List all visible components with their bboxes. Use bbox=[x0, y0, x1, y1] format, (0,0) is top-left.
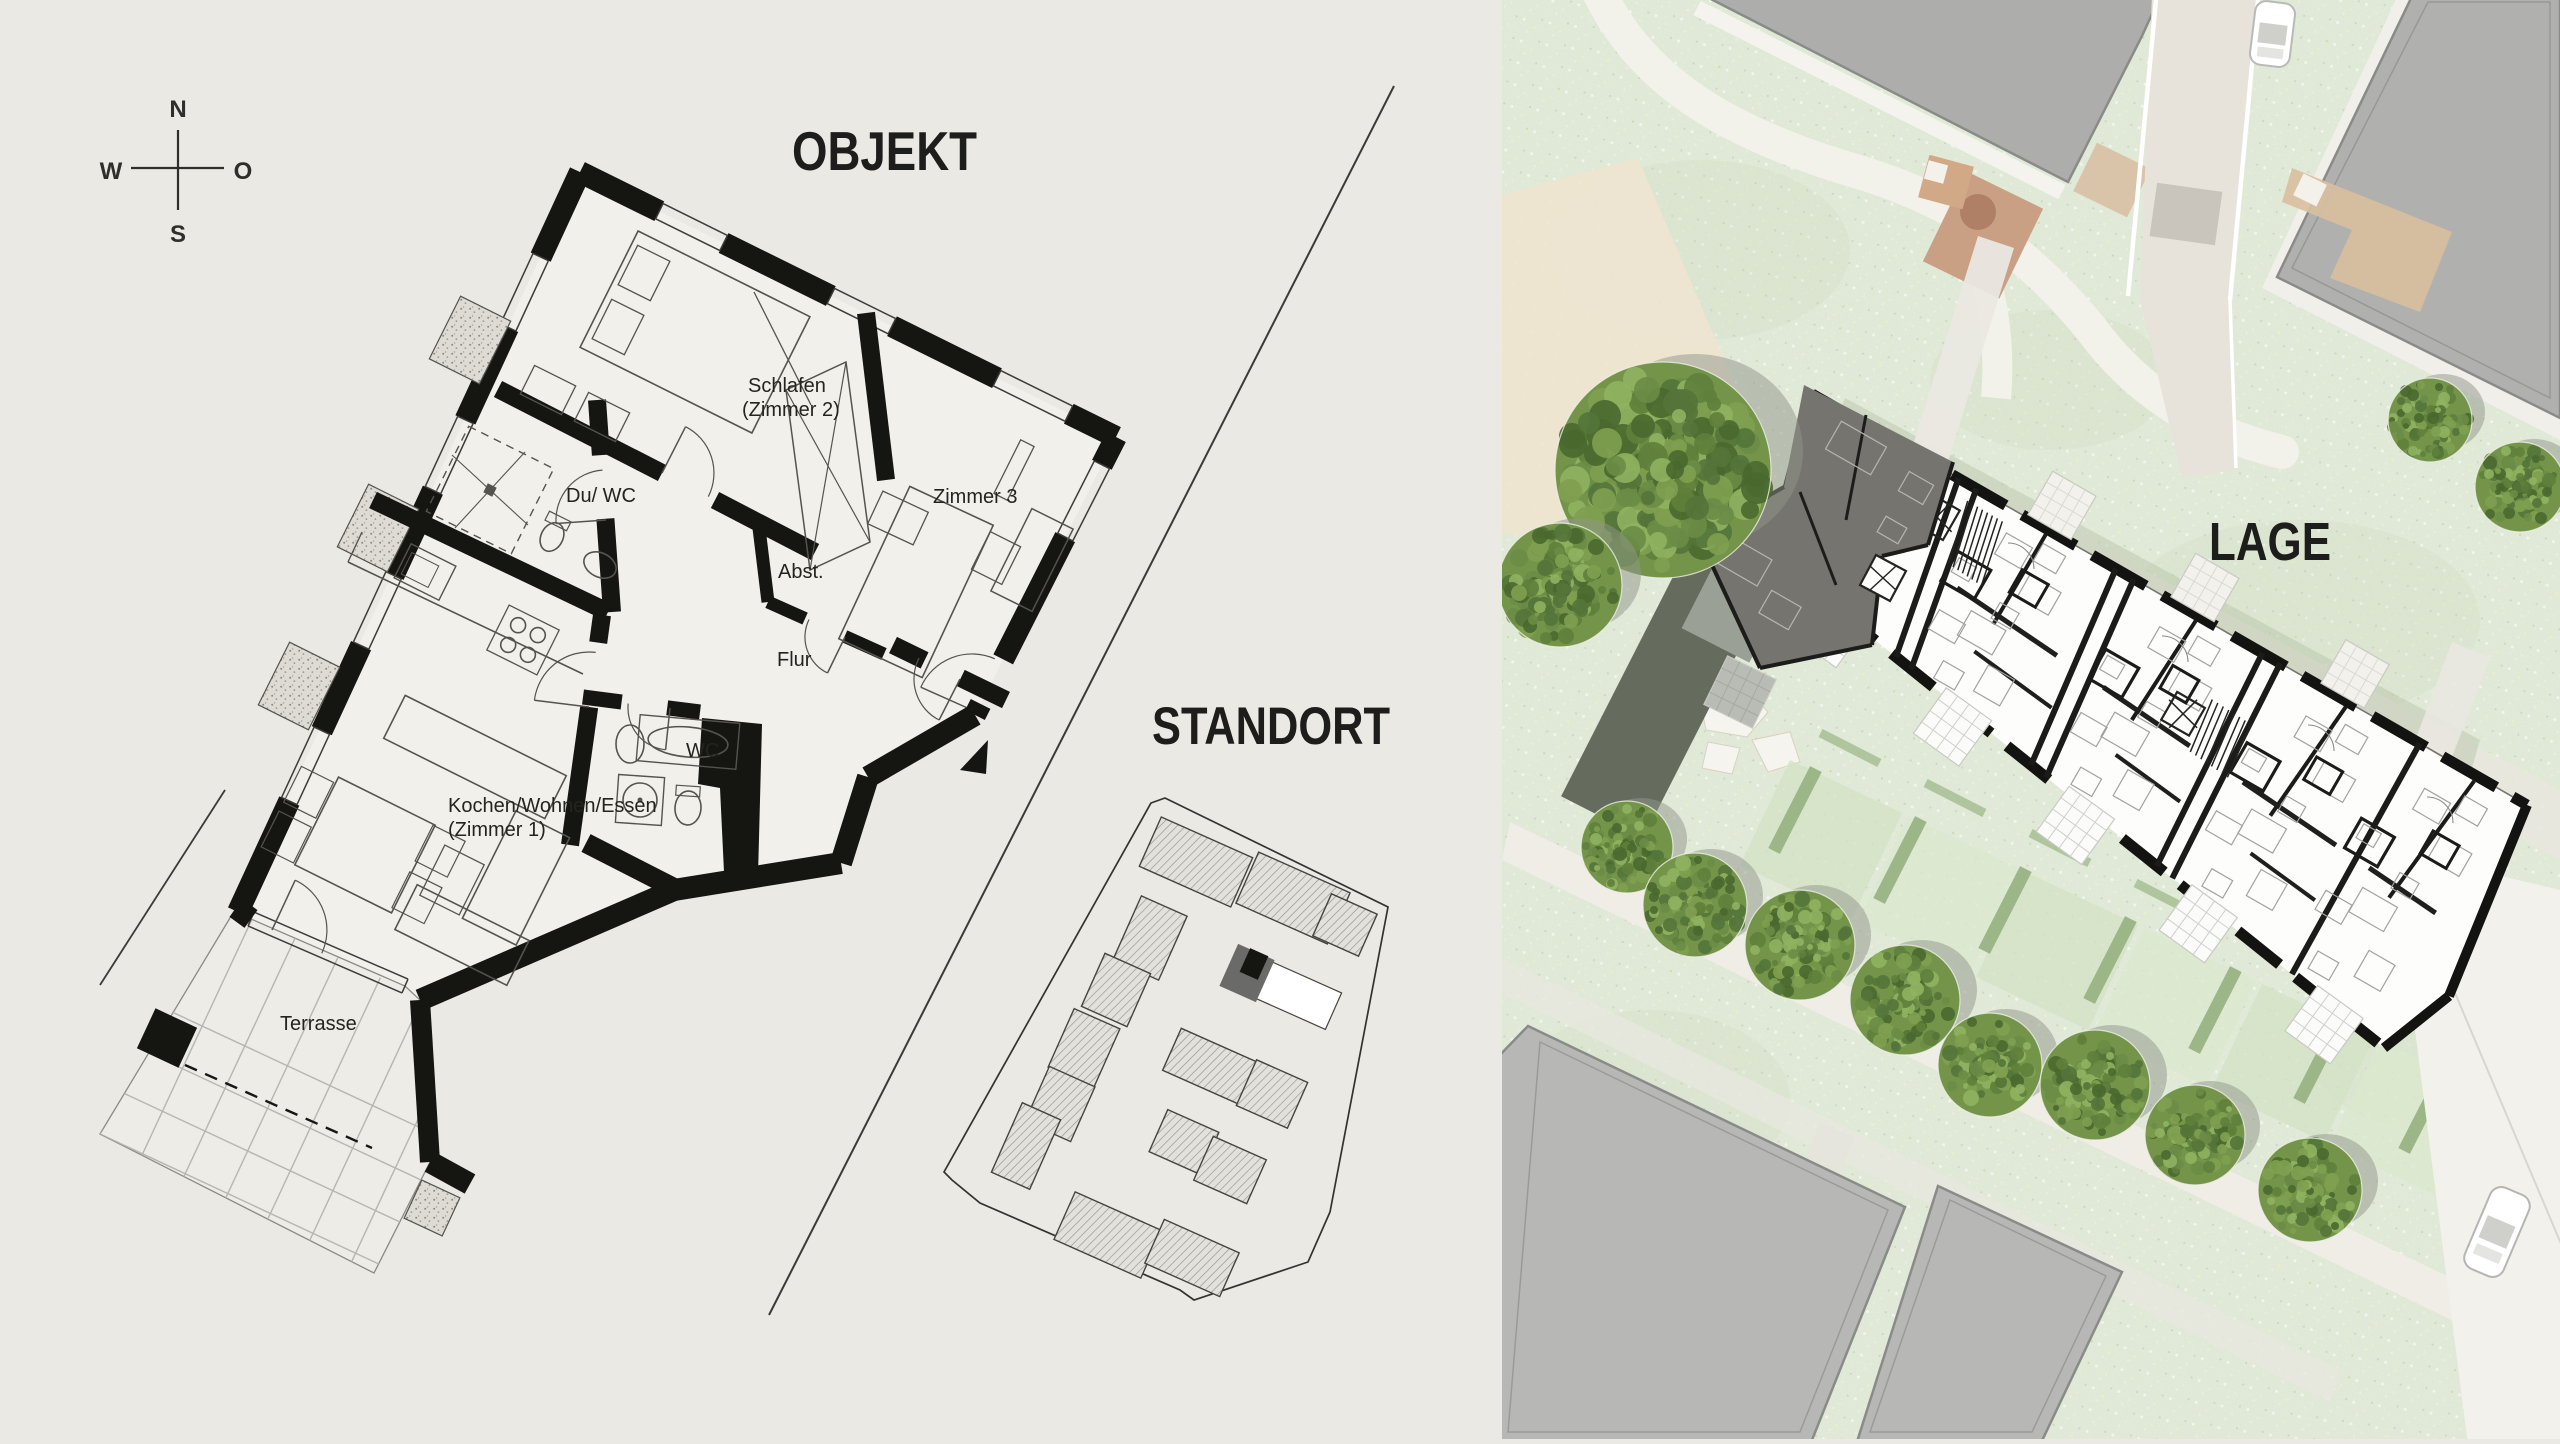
svg-text:Terrasse: Terrasse bbox=[280, 1013, 357, 1035]
svg-text:S: S bbox=[170, 221, 186, 248]
svg-text:N: N bbox=[169, 96, 186, 123]
svg-text:OBJEKT: OBJEKT bbox=[792, 120, 977, 182]
svg-text:(Zimmer 2): (Zimmer 2) bbox=[742, 399, 840, 421]
svg-text:Abst.: Abst. bbox=[778, 561, 824, 583]
svg-text:LAGE: LAGE bbox=[2209, 512, 2331, 572]
svg-text:Du/ WC: Du/ WC bbox=[566, 485, 636, 507]
svg-text:(Zimmer 1): (Zimmer 1) bbox=[448, 819, 546, 841]
svg-text:Kochen/Wohnen/Essen: Kochen/Wohnen/Essen bbox=[448, 795, 657, 817]
svg-text:Flur: Flur bbox=[777, 649, 812, 671]
svg-text:O: O bbox=[234, 158, 253, 185]
svg-text:STANDORT: STANDORT bbox=[1152, 697, 1390, 756]
svg-text:Schlafen: Schlafen bbox=[748, 375, 826, 397]
svg-text:W: W bbox=[100, 158, 123, 185]
svg-text:Zimmer 3: Zimmer 3 bbox=[933, 486, 1017, 508]
svg-text:WC: WC bbox=[686, 740, 719, 762]
